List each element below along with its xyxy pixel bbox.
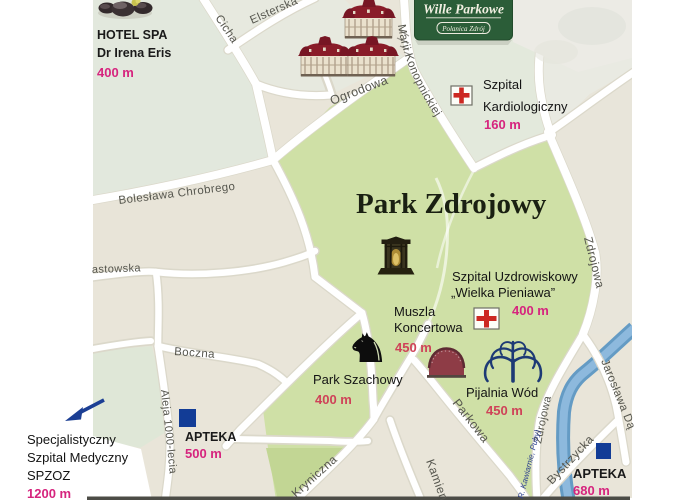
svg-text:Dr Irena Eris: Dr Irena Eris <box>97 46 171 60</box>
svg-text:APTEKA: APTEKA <box>185 430 236 444</box>
svg-text:Polanica Zdrój: Polanica Zdrój <box>441 25 485 33</box>
svg-text:400 m: 400 m <box>315 392 352 407</box>
svg-text:Park Zdrojowy: Park Zdrojowy <box>356 188 547 220</box>
svg-text:450 m: 450 m <box>395 340 432 355</box>
svg-text:Szpital Medyczny: Szpital Medyczny <box>27 450 129 465</box>
svg-text:APTEKA: APTEKA <box>573 466 627 481</box>
svg-text:Wille Parkowe: Wille Parkowe <box>423 2 504 17</box>
svg-text:Muszla: Muszla <box>394 304 436 319</box>
svg-text:Koncertowa: Koncertowa <box>394 320 463 335</box>
svg-text:HOTEL SPA: HOTEL SPA <box>97 28 167 42</box>
svg-text:680 m: 680 m <box>573 483 610 498</box>
svg-text:Szpital Uzdrowiskowy: Szpital Uzdrowiskowy <box>452 269 578 284</box>
svg-text:Szpital: Szpital <box>483 77 522 92</box>
svg-text:400 m: 400 m <box>512 303 549 318</box>
svg-text:1200 m: 1200 m <box>27 486 71 500</box>
svg-text:Specjalistyczny: Specjalistyczny <box>27 432 116 447</box>
svg-text:500 m: 500 m <box>185 446 222 461</box>
svg-text:astowska: astowska <box>92 262 142 276</box>
svg-text:160 m: 160 m <box>484 117 521 132</box>
svg-text:450 m: 450 m <box>486 403 523 418</box>
svg-text:400 m: 400 m <box>97 65 134 80</box>
svg-text:Park Szachowy: Park Szachowy <box>313 372 403 387</box>
svg-text:„Wielka Pieniawa”: „Wielka Pieniawa” <box>451 285 555 300</box>
svg-text:Pijalnia Wód: Pijalnia Wód <box>466 385 538 400</box>
svg-text:Kardiologiczny: Kardiologiczny <box>483 99 568 114</box>
svg-text:SPZOZ: SPZOZ <box>27 468 70 483</box>
